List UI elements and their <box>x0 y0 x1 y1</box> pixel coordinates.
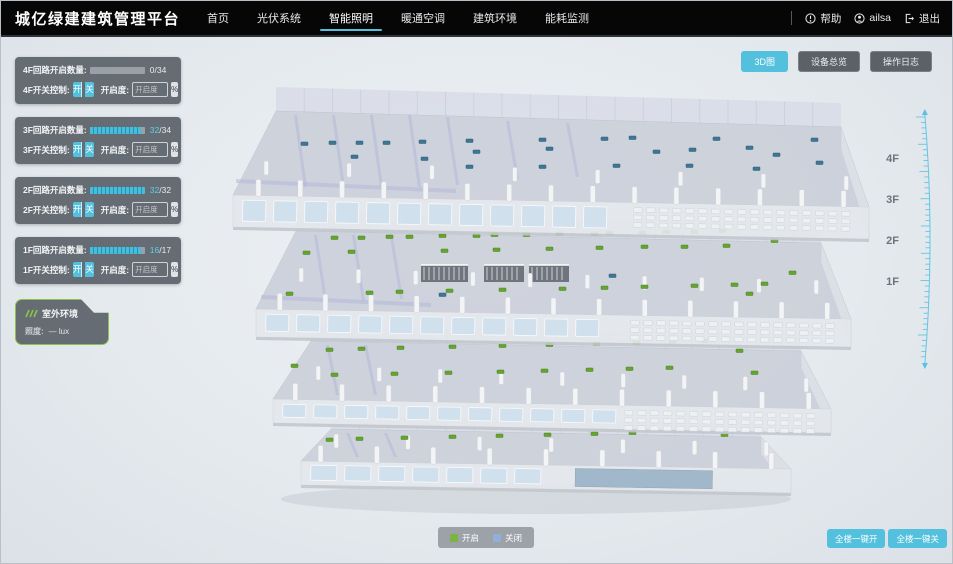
nav-item-hvac[interactable]: 暖通空调 <box>398 0 448 36</box>
circuit-count-label: 1F回路开启数量: <box>23 244 87 256</box>
floor-label-1f[interactable]: 1F <box>886 276 899 288</box>
floor-zoom-ruler[interactable] <box>912 105 938 373</box>
circuit-count-value: 16/17 <box>150 245 171 255</box>
circuit-count-label: 2F回路开启数量: <box>23 184 87 196</box>
help-icon <box>805 13 816 24</box>
app-window: 城亿绿建建筑管理平台 首页 光伏系统 智能照明 暖通空调 建筑环境 能耗监测 帮… <box>0 0 953 564</box>
circuit-count-value: 0/34 <box>150 65 167 75</box>
top-nav: 城亿绿建建筑管理平台 首页 光伏系统 智能照明 暖通空调 建筑环境 能耗监测 帮… <box>1 1 952 37</box>
legend-off-label: 关闭 <box>505 532 522 544</box>
switch-on-button[interactable]: 开 <box>73 262 83 277</box>
dim-level-label: 开启度: <box>101 204 129 216</box>
percent-apply-button[interactable]: % <box>171 142 178 157</box>
circuit-progress-bar <box>90 187 145 194</box>
nav-item-home[interactable]: 首页 <box>204 0 232 36</box>
floor-panel-2f: 2F回路开启数量: 32/32 2F开关控制: 开 关 开启度: % <box>15 177 181 224</box>
circuit-progress-bar <box>90 67 145 74</box>
dim-level-input[interactable] <box>132 142 168 157</box>
circuit-count-value: 32/32 <box>150 185 171 195</box>
view-3d-button[interactable]: 3D图 <box>741 51 788 72</box>
circuit-progress-bar <box>90 247 145 254</box>
circuit-count-label: 4F回路开启数量: <box>23 64 87 76</box>
main-nav: 首页 光伏系统 智能照明 暖通空调 建筑环境 能耗监测 <box>204 0 592 36</box>
help-label: 帮助 <box>820 11 841 26</box>
outdoor-panel-title: 室外环境 <box>42 307 78 320</box>
percent-apply-button[interactable]: % <box>171 82 178 97</box>
bulk-control-buttons: 全楼一键开 全楼一键关 <box>827 529 947 548</box>
dim-level-label: 开启度: <box>101 144 129 156</box>
view-mode-buttons: 3D图 设备总览 操作日志 <box>741 51 932 72</box>
floor-axis-labels: 4F 3F 2F 1F <box>886 153 899 288</box>
switch-control-label: 3F开关控制: <box>23 144 70 156</box>
floor-label-3f[interactable]: 3F <box>886 194 899 206</box>
illuminance-value: — lux <box>49 327 69 336</box>
logout-button[interactable]: 退出 <box>904 11 940 26</box>
nav-item-building-env[interactable]: 建筑环境 <box>470 0 520 36</box>
switch-off-button[interactable]: 关 <box>85 202 94 217</box>
circuit-count-label: 3F回路开启数量: <box>23 124 87 136</box>
switch-on-button[interactable]: 开 <box>73 82 83 97</box>
device-overview-button[interactable]: 设备总览 <box>798 51 860 72</box>
circuit-progress-bar <box>90 127 145 134</box>
switch-off-button[interactable]: 关 <box>85 262 94 277</box>
nav-right-tools: 帮助 ailsa 退出 <box>791 11 952 26</box>
floor-panel-1f: 1F回路开启数量: 16/17 1F开关控制: 开 关 开启度: % <box>15 237 181 284</box>
nav-item-pv-system[interactable]: 光伏系统 <box>254 0 304 36</box>
legend-item-off: 关闭 <box>493 532 522 544</box>
logout-label: 退出 <box>919 11 940 26</box>
app-title: 城亿绿建建筑管理平台 <box>1 8 198 29</box>
building-3d-model[interactable] <box>206 49 906 519</box>
user-icon <box>854 13 865 24</box>
circuit-count-value: 32/34 <box>150 125 171 135</box>
username: ailsa <box>869 12 891 24</box>
all-floors-on-button[interactable]: 全楼一键开 <box>827 529 886 548</box>
logout-icon <box>904 13 915 24</box>
switch-off-button[interactable]: 关 <box>85 142 94 157</box>
floor-label-4f[interactable]: 4F <box>886 153 899 165</box>
dim-level-label: 开启度: <box>101 84 129 96</box>
illuminance-label: 照度: <box>25 326 44 337</box>
switch-off-button[interactable]: 关 <box>85 82 94 97</box>
dim-level-input[interactable] <box>132 202 168 217</box>
on-color-swatch <box>450 534 458 542</box>
legend-on-label: 开启 <box>462 532 479 544</box>
nav-item-energy-monitor[interactable]: 能耗监测 <box>542 0 592 36</box>
legend-item-on: 开启 <box>450 532 479 544</box>
off-color-swatch <box>493 534 501 542</box>
dim-level-input[interactable] <box>132 262 168 277</box>
switch-control-label: 4F开关控制: <box>23 84 70 96</box>
floor-label-2f[interactable]: 2F <box>886 235 899 247</box>
switch-on-button[interactable]: 开 <box>73 142 83 157</box>
switch-on-button[interactable]: 开 <box>73 202 83 217</box>
operation-log-button[interactable]: 操作日志 <box>870 51 932 72</box>
outdoor-light-icon <box>25 309 38 318</box>
dim-level-input[interactable] <box>132 82 168 97</box>
floor-panel-3f: 3F回路开启数量: 32/34 3F开关控制: 开 关 开启度: % <box>15 117 181 164</box>
outdoor-environment-panel: 室外环境 照度: — lux <box>15 299 109 345</box>
user-menu[interactable]: ailsa <box>854 12 891 24</box>
nav-item-smart-lighting[interactable]: 智能照明 <box>326 0 376 36</box>
switch-control-label: 2F开关控制: <box>23 204 70 216</box>
switch-control-label: 1F开关控制: <box>23 264 70 276</box>
nav-divider <box>791 11 792 25</box>
help-button[interactable]: 帮助 <box>805 11 841 26</box>
floor-control-sidebar: 4F回路开启数量: 0/34 4F开关控制: 开 关 开启度: % 3F回路开启… <box>15 57 181 345</box>
dim-level-label: 开启度: <box>101 264 129 276</box>
all-floors-off-button[interactable]: 全楼一键关 <box>888 529 947 548</box>
floor-panel-4f: 4F回路开启数量: 0/34 4F开关控制: 开 关 开启度: % <box>15 57 181 104</box>
light-status-legend: 开启 关闭 <box>438 527 534 548</box>
percent-apply-button[interactable]: % <box>171 262 178 277</box>
percent-apply-button[interactable]: % <box>171 202 178 217</box>
